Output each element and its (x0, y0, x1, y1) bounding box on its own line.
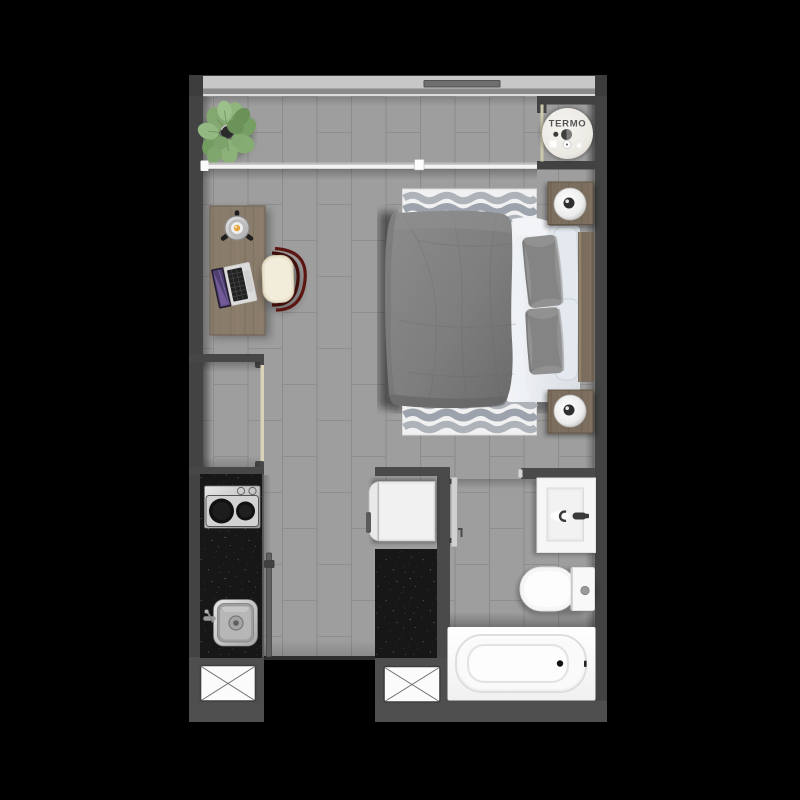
svg-text:TERMO: TERMO (549, 119, 587, 130)
